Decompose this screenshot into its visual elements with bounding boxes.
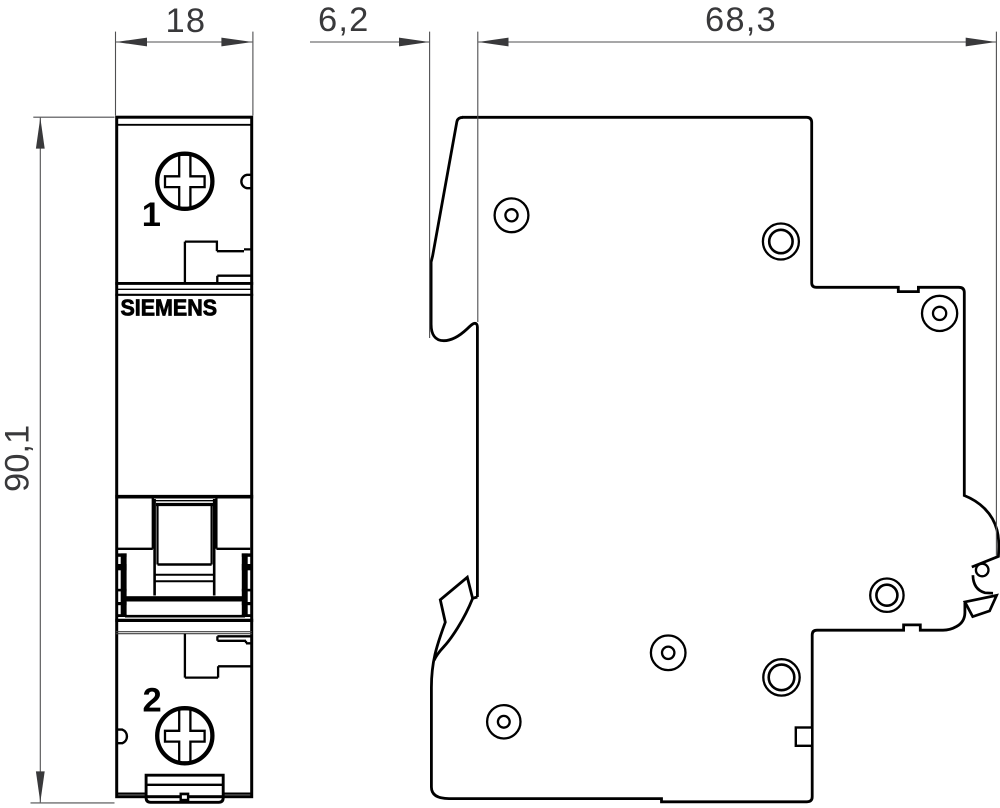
- svg-text:6,2: 6,2: [318, 1, 370, 39]
- svg-text:2: 2: [143, 682, 162, 720]
- svg-text:SIEMENS: SIEMENS: [121, 295, 218, 321]
- svg-text:1: 1: [142, 196, 161, 234]
- svg-text:68,3: 68,3: [705, 1, 777, 39]
- svg-text:90,1: 90,1: [0, 425, 37, 492]
- svg-text:18: 18: [166, 2, 207, 40]
